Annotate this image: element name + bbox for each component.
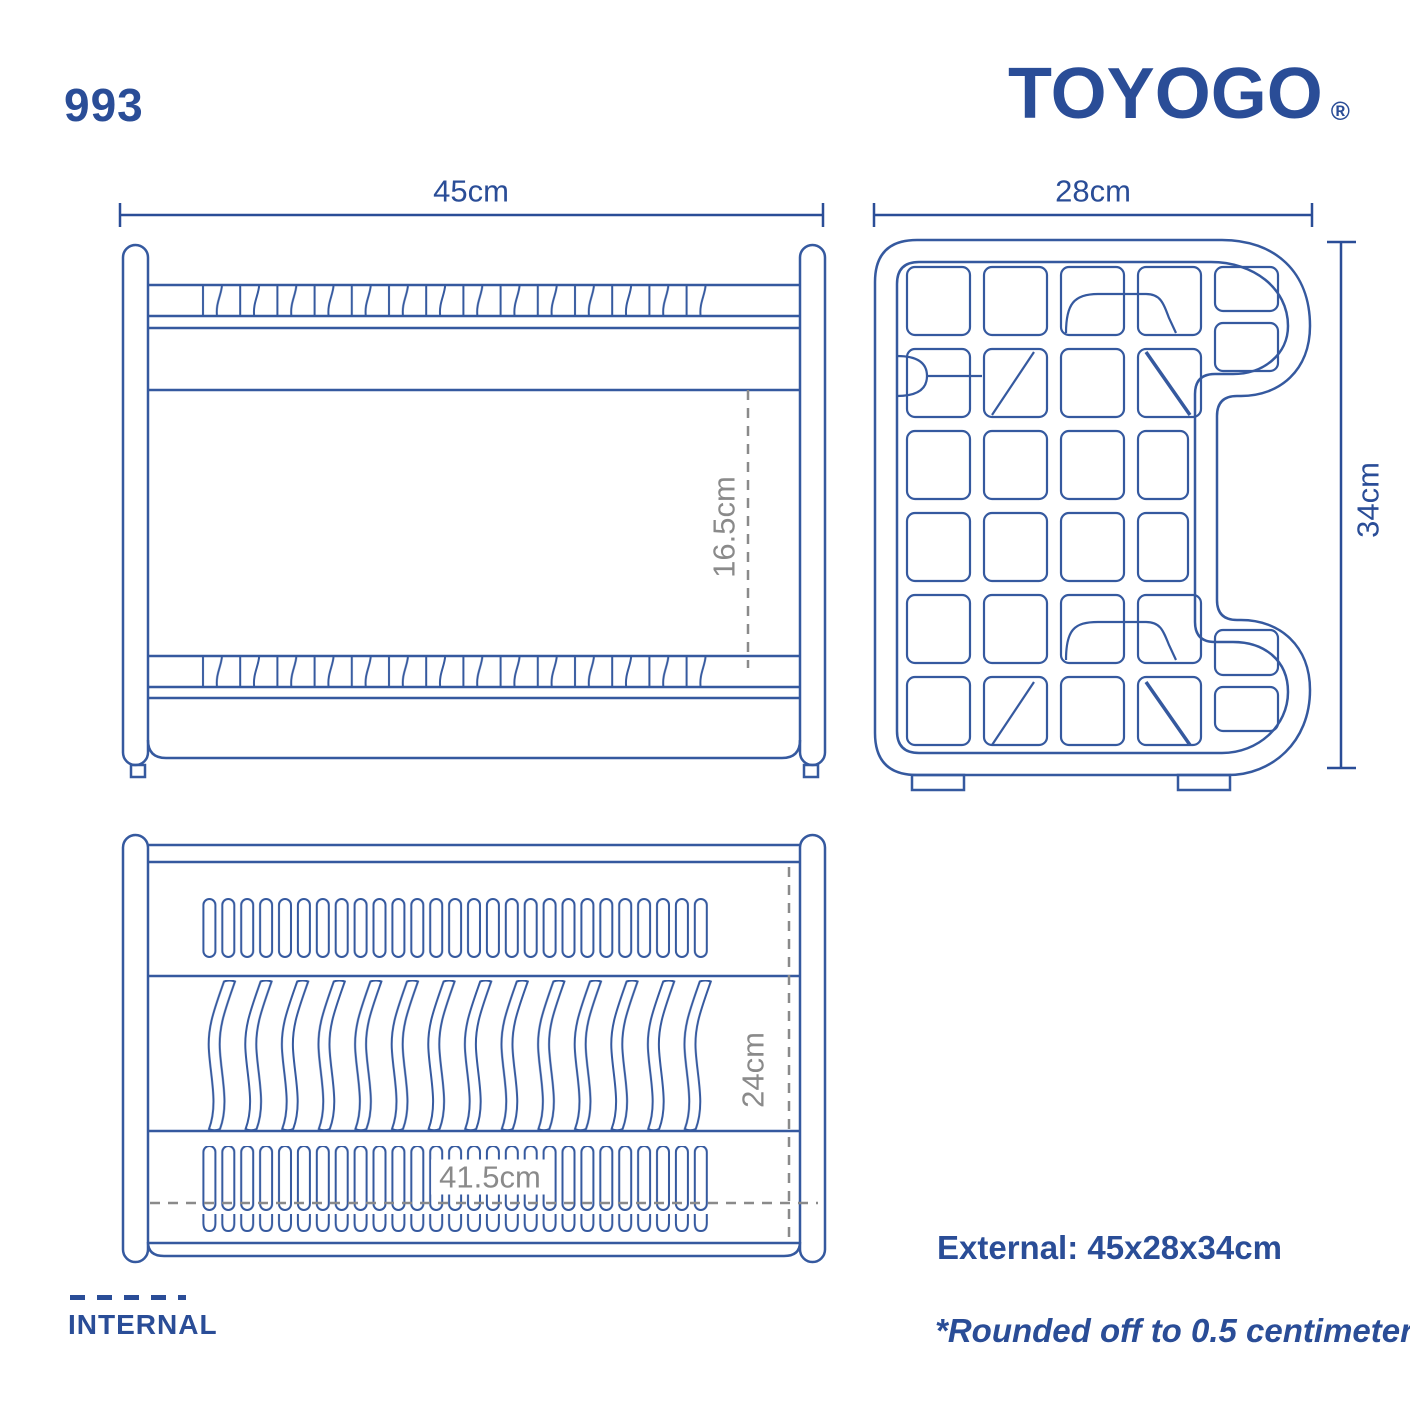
front-lower-plate-slots (195, 656, 716, 687)
front-internal-height-label: 16.5cm (709, 476, 740, 578)
brand-logo-text: TOYOGO (1008, 54, 1323, 134)
front-right-foot (804, 765, 818, 777)
side-view-drawing (875, 240, 1310, 790)
spec-sheet: 993 TOYOGO® 45cm 28cm 34cm 16.5cm 24cm 4… (0, 0, 1410, 1410)
top-view-drawing (123, 835, 825, 1262)
front-upper-plate-slots (195, 285, 716, 316)
brand-logo: TOYOGO® (1008, 58, 1350, 130)
legend-internal-label: INTERNAL (68, 1311, 218, 1339)
side-outer-outline (875, 240, 1310, 775)
model-number: 993 (64, 82, 144, 128)
side-depth-label: 28cm (1055, 176, 1131, 207)
side-axle-bump (897, 356, 927, 396)
internal-dash-sample (70, 1295, 186, 1300)
top-internal-width-label: 41.5cm (431, 1160, 549, 1195)
legend-internal: INTERNAL (68, 1295, 218, 1339)
registered-trademark-symbol: ® (1331, 98, 1350, 124)
top-internal-depth-label: 24cm (738, 1032, 769, 1108)
side-height-label: 34cm (1353, 462, 1384, 538)
side-grid (907, 267, 1278, 745)
technical-drawing (0, 0, 1410, 1410)
front-drip-tray-bottom (148, 740, 800, 758)
top-plate-rack-row (202, 980, 714, 1130)
side-right-foot (1178, 775, 1230, 790)
front-left-foot (131, 765, 145, 777)
rounding-note: *Rounded off to 0.5 centimeter (935, 1314, 1410, 1347)
external-dimensions-note: External: 45x28x34cm (937, 1231, 1282, 1264)
side-left-foot (912, 775, 964, 790)
front-width-label: 45cm (433, 176, 509, 207)
top-upper-slot-row (200, 898, 710, 958)
